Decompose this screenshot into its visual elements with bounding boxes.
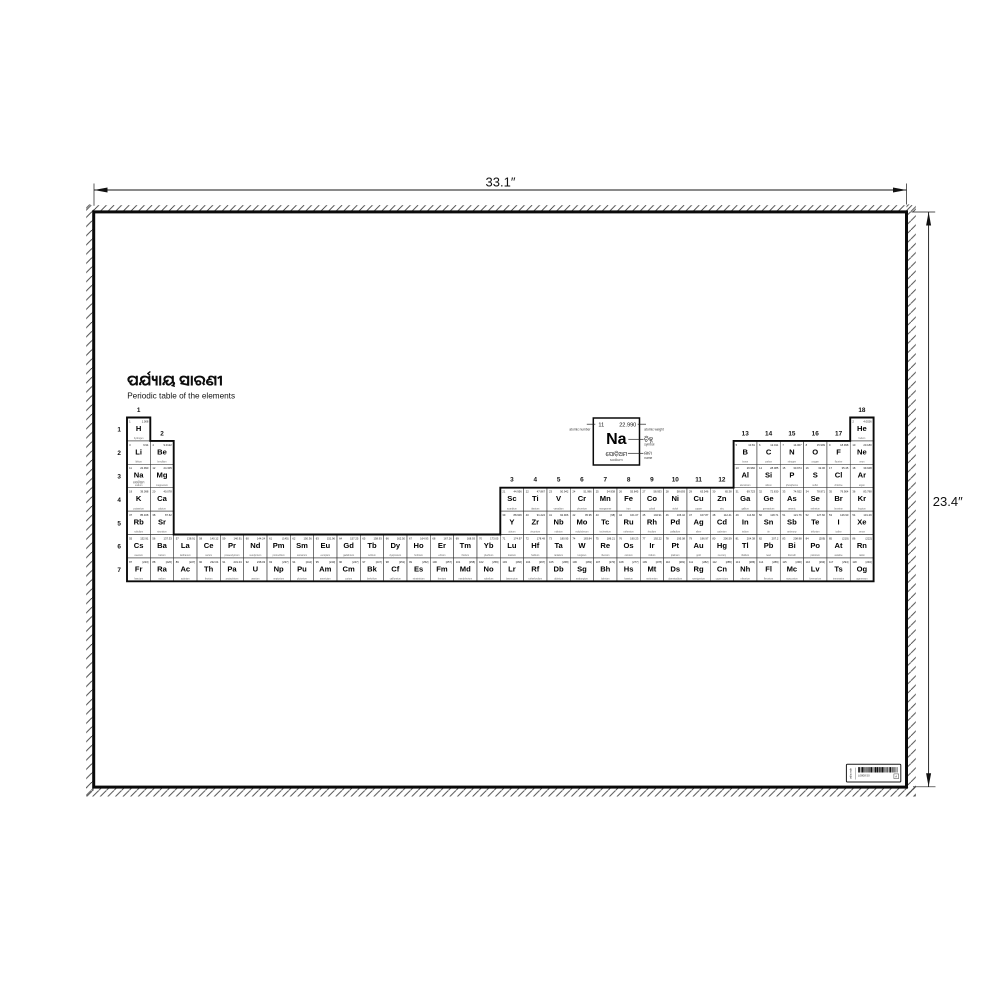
svg-text:xenon: xenon (859, 532, 866, 534)
svg-text:72: 72 (526, 536, 529, 540)
svg-text:beryllium: beryllium (157, 461, 166, 464)
svg-text:12: 12 (718, 476, 726, 483)
svg-text:La: La (181, 541, 191, 550)
svg-text:12.011: 12.011 (770, 443, 779, 447)
svg-text:Cm: Cm (343, 564, 355, 573)
svg-text:Pd: Pd (670, 518, 680, 527)
svg-text:flerovium: flerovium (764, 578, 773, 581)
svg-text:Ge: Ge (763, 494, 773, 503)
svg-text:[247]: [247] (352, 560, 358, 564)
svg-text:47.867: 47.867 (537, 490, 546, 494)
svg-text:167.26: 167.26 (443, 536, 452, 540)
svg-text:meitnerium: meitnerium (646, 578, 657, 581)
svg-text:Ds: Ds (670, 564, 680, 573)
svg-text:iodine: iodine (835, 532, 842, 534)
svg-text:117: 117 (829, 560, 834, 564)
svg-text:nihonium: nihonium (741, 579, 750, 581)
svg-text:hydrogen: hydrogen (134, 437, 144, 440)
svg-text:silver: silver (696, 531, 702, 534)
svg-text:europium: europium (321, 554, 331, 557)
svg-text:aluminium: aluminium (740, 485, 751, 487)
svg-text:33.1″: 33.1″ (486, 175, 516, 190)
svg-text:dubnium: dubnium (554, 579, 563, 581)
svg-text:200.59: 200.59 (723, 536, 732, 540)
svg-text:101.07: 101.07 (630, 513, 639, 517)
svg-text:28.085: 28.085 (770, 466, 779, 470)
svg-text:9: 9 (650, 476, 654, 483)
svg-text:vanadium: vanadium (554, 508, 564, 510)
svg-text:90: 90 (199, 560, 202, 564)
svg-text:15: 15 (782, 466, 785, 470)
svg-text:3: 3 (510, 476, 514, 483)
svg-text:Zn: Zn (717, 494, 727, 503)
svg-text:Es: Es (414, 564, 423, 573)
svg-text:74.922: 74.922 (793, 490, 802, 494)
svg-text:79: 79 (689, 536, 692, 540)
svg-text:14.007: 14.007 (793, 443, 802, 447)
svg-text:atomic weight: atomic weight (644, 428, 664, 432)
svg-text:Mg: Mg (157, 471, 168, 480)
svg-text:argon: argon (859, 484, 866, 487)
svg-text:titanium: titanium (531, 507, 539, 510)
svg-text:cobalt: cobalt (649, 507, 655, 510)
svg-text:162.50: 162.50 (397, 536, 406, 540)
svg-text:92.906: 92.906 (560, 513, 569, 517)
svg-text:Ar: Ar (858, 471, 866, 480)
svg-text:livermorium: livermorium (809, 578, 821, 581)
svg-text:118: 118 (852, 560, 857, 564)
svg-text:8: 8 (627, 476, 631, 483)
svg-text:Cf: Cf (391, 564, 399, 573)
svg-text:6: 6 (117, 544, 121, 551)
svg-text:Ho: Ho (414, 541, 424, 550)
svg-text:[226]: [226] (166, 560, 172, 564)
svg-text:Pb: Pb (764, 541, 774, 550)
svg-text:60: 60 (246, 536, 249, 540)
svg-text:Tl: Tl (742, 541, 749, 550)
svg-text:55: 55 (129, 536, 132, 540)
svg-text:67: 67 (409, 536, 412, 540)
svg-text:Mn: Mn (600, 494, 611, 503)
svg-text:17: 17 (835, 430, 843, 437)
svg-text:23: 23 (549, 490, 552, 494)
svg-text:chlorine: chlorine (835, 484, 844, 487)
svg-text:[268]: [268] (562, 560, 568, 564)
svg-text:Bh: Bh (600, 564, 610, 573)
svg-text:polonium: polonium (811, 555, 820, 557)
svg-text:36: 36 (852, 490, 855, 494)
svg-text:fluorine: fluorine (835, 461, 843, 464)
svg-text:50.942: 50.942 (560, 490, 569, 494)
svg-text:zirconium: zirconium (530, 531, 540, 534)
svg-text:70: 70 (479, 536, 482, 540)
svg-text:[223]: [223] (142, 560, 148, 564)
svg-text:[286]: [286] (749, 560, 755, 564)
svg-text:thulium: thulium (462, 554, 469, 557)
svg-text:No: No (484, 564, 494, 573)
svg-text:232.04: 232.04 (210, 560, 219, 564)
svg-text:S: S (813, 471, 818, 480)
svg-text:9.0122: 9.0122 (164, 443, 173, 447)
svg-text:150.36: 150.36 (304, 536, 313, 540)
svg-text:75: 75 (596, 536, 599, 540)
svg-text:207.2: 207.2 (772, 536, 779, 540)
svg-text:F: F (836, 447, 841, 456)
svg-text:3: 3 (117, 474, 121, 481)
svg-text:99: 99 (409, 560, 412, 564)
svg-text:arsenic: arsenic (788, 507, 796, 510)
svg-text:gadolinium: gadolinium (343, 555, 354, 557)
svg-text:Y: Y (509, 518, 514, 527)
svg-text:Gd: Gd (343, 541, 354, 550)
svg-text:4: 4 (117, 497, 121, 504)
svg-text:sodium: sodium (610, 457, 624, 462)
svg-text:Fm: Fm (436, 564, 448, 573)
svg-text:[294]: [294] (866, 560, 872, 564)
svg-text:sodium: sodium (135, 485, 142, 487)
svg-text:Ti: Ti (532, 494, 539, 503)
svg-text:Ag: Ag (694, 518, 704, 527)
svg-text:Ne: Ne (857, 447, 867, 456)
svg-text:Hs: Hs (624, 564, 634, 573)
svg-text:25: 25 (596, 490, 599, 494)
svg-text:110: 110 (666, 560, 671, 564)
svg-text:79.904: 79.904 (840, 490, 849, 494)
svg-text:caesium: caesium (134, 555, 143, 557)
svg-text:scandium: scandium (507, 508, 517, 510)
svg-text:Mt: Mt (647, 564, 656, 573)
svg-text:thorium: thorium (205, 578, 213, 581)
svg-text:Ni: Ni (671, 494, 679, 503)
svg-text:C: C (766, 447, 772, 456)
svg-text:H: H (136, 424, 141, 433)
svg-text:Rh: Rh (647, 518, 657, 527)
svg-text:tantalum: tantalum (554, 554, 563, 557)
svg-text:Zr: Zr (531, 518, 539, 527)
svg-text:rutherfordium: rutherfordium (528, 578, 542, 581)
svg-text:109: 109 (642, 560, 647, 564)
svg-text:22: 22 (526, 490, 529, 494)
svg-text:140.12: 140.12 (210, 536, 219, 540)
svg-text:odia edn: odia edn (848, 767, 852, 778)
svg-text:86: 86 (852, 536, 855, 540)
svg-text:darmstadtium: darmstadtium (668, 578, 682, 581)
svg-text:7: 7 (604, 476, 608, 483)
svg-text:98: 98 (386, 560, 389, 564)
svg-text:Rn: Rn (857, 541, 867, 550)
svg-text:Os: Os (624, 541, 634, 550)
svg-text:Sb: Sb (787, 518, 797, 527)
svg-text:164.93: 164.93 (420, 536, 429, 540)
svg-text:180.95: 180.95 (560, 536, 569, 540)
svg-text:2: 2 (160, 430, 164, 437)
svg-text:atomic number: atomic number (569, 428, 591, 432)
svg-text:94: 94 (292, 560, 295, 564)
svg-text:20: 20 (152, 490, 155, 494)
svg-text:231.04: 231.04 (234, 560, 243, 564)
svg-text:Po: Po (810, 541, 820, 550)
svg-text:113: 113 (736, 560, 741, 564)
svg-text:28: 28 (666, 490, 669, 494)
svg-text:phosphorus: phosphorus (786, 484, 799, 487)
svg-text:Kr: Kr (858, 494, 866, 503)
svg-text:astatine: astatine (835, 554, 844, 557)
svg-text:72.630: 72.630 (770, 490, 779, 494)
svg-text:Nb: Nb (554, 518, 564, 527)
svg-text:dysprosium: dysprosium (389, 554, 401, 557)
svg-text:21: 21 (502, 490, 505, 494)
svg-text:57: 57 (176, 536, 179, 540)
svg-text:cerium: cerium (205, 554, 212, 557)
svg-text:10: 10 (852, 443, 855, 447)
svg-text:plutonium: plutonium (297, 578, 307, 581)
svg-text:238.03: 238.03 (257, 560, 266, 564)
svg-text:Tm: Tm (460, 541, 472, 550)
svg-text:121.76: 121.76 (793, 513, 802, 517)
svg-text:yttrium: yttrium (508, 531, 515, 534)
svg-text:Na: Na (606, 431, 627, 448)
svg-text:Lv: Lv (811, 564, 821, 573)
svg-text:178.49: 178.49 (537, 536, 546, 540)
svg-text:Rf: Rf (531, 564, 539, 573)
svg-text:[278]: [278] (656, 560, 662, 564)
svg-text:20.180: 20.180 (863, 443, 872, 447)
svg-text:bohrium: bohrium (601, 578, 609, 581)
svg-text:lawrencium: lawrencium (506, 578, 518, 581)
svg-text:114: 114 (759, 560, 764, 564)
svg-text:krypton: krypton (858, 507, 866, 510)
svg-text:158.93: 158.93 (373, 536, 382, 540)
svg-text:64: 64 (339, 536, 342, 540)
svg-text:palladium: palladium (670, 532, 680, 534)
svg-text:Ba: Ba (157, 541, 167, 550)
svg-text:Cs: Cs (134, 541, 144, 550)
svg-text:115: 115 (782, 560, 787, 564)
svg-text:78: 78 (666, 536, 669, 540)
svg-text:Ta: Ta (554, 541, 563, 550)
svg-text:53: 53 (829, 513, 832, 517)
svg-text:80: 80 (712, 536, 715, 540)
svg-text:55.845: 55.845 (630, 490, 639, 494)
svg-text:73: 73 (549, 536, 552, 540)
svg-text:Cn: Cn (717, 564, 727, 573)
svg-text:12: 12 (152, 466, 155, 470)
svg-text:At: At (835, 541, 843, 550)
svg-text:[210]: [210] (842, 536, 848, 540)
svg-text:Ce: Ce (204, 541, 214, 550)
svg-text:erbium: erbium (438, 554, 445, 557)
svg-text:germanium: germanium (763, 507, 775, 510)
svg-text:34: 34 (806, 490, 809, 494)
svg-text:108: 108 (619, 560, 624, 564)
svg-text:[259]: [259] (492, 560, 498, 564)
svg-text:85: 85 (829, 536, 832, 540)
svg-text:holmium: holmium (414, 555, 423, 557)
svg-text:11: 11 (129, 466, 132, 470)
svg-text:tellurium: tellurium (811, 531, 820, 534)
svg-text:44: 44 (619, 513, 622, 517)
svg-text:195.08: 195.08 (677, 536, 686, 540)
svg-text:americium: americium (320, 578, 331, 581)
svg-text:[145]: [145] (282, 536, 288, 540)
svg-text:81: 81 (736, 536, 739, 540)
svg-text:osmium: osmium (625, 555, 633, 557)
svg-text:uranium: uranium (251, 578, 259, 581)
svg-text:84: 84 (806, 536, 809, 540)
svg-text:[222]: [222] (866, 536, 872, 540)
svg-text:2: 2 (117, 450, 121, 457)
svg-text:[251]: [251] (399, 560, 405, 564)
svg-text:32.06: 32.06 (818, 466, 825, 470)
svg-text:selenium: selenium (811, 508, 820, 510)
svg-text:rhodium: rhodium (648, 531, 656, 534)
svg-text:112: 112 (712, 560, 717, 564)
svg-text:131.29: 131.29 (863, 513, 872, 517)
svg-text:82: 82 (759, 536, 762, 540)
svg-text:berkelium: berkelium (367, 578, 377, 581)
svg-text:Og: Og (857, 564, 868, 573)
svg-text:61: 61 (269, 536, 272, 540)
svg-text:Pr: Pr (228, 541, 236, 550)
svg-text:Eu: Eu (320, 541, 330, 550)
svg-text:196.97: 196.97 (700, 536, 709, 540)
svg-text:173.05: 173.05 (490, 536, 499, 540)
svg-text:[247]: [247] (376, 560, 382, 564)
svg-text:lutetium: lutetium (508, 554, 516, 557)
svg-text:78.971: 78.971 (817, 490, 826, 494)
svg-text:Nh: Nh (740, 564, 750, 573)
svg-text:40: 40 (526, 513, 529, 517)
svg-text:barium: barium (158, 554, 165, 557)
svg-text:platinum: platinum (671, 554, 680, 557)
svg-text:Br: Br (834, 494, 842, 503)
svg-text:18.998: 18.998 (840, 443, 849, 447)
svg-text:68: 68 (432, 536, 435, 540)
svg-text:neptunium: neptunium (273, 578, 284, 581)
svg-text:[244]: [244] (306, 560, 312, 564)
svg-text:mercury: mercury (718, 554, 727, 557)
svg-text:Lr: Lr (508, 564, 516, 573)
svg-text:24.305: 24.305 (164, 466, 173, 470)
svg-text:13: 13 (736, 466, 739, 470)
svg-text:potassium: potassium (133, 507, 144, 510)
svg-text:[258]: [258] (469, 560, 475, 564)
svg-text:K: K (136, 494, 142, 503)
svg-text:hafnium: hafnium (531, 555, 539, 557)
svg-text:208.98: 208.98 (793, 536, 802, 540)
svg-text:54.938: 54.938 (607, 490, 616, 494)
svg-text:Pt: Pt (671, 541, 679, 550)
svg-text:francium: francium (134, 578, 143, 581)
svg-text:11: 11 (695, 476, 702, 483)
svg-text:[294]: [294] (842, 560, 848, 564)
svg-text:O: O (812, 447, 818, 456)
svg-text:terbium: terbium (368, 554, 376, 557)
svg-text:Ts: Ts (834, 564, 842, 573)
svg-text:copper: copper (695, 507, 702, 510)
svg-text:Ac: Ac (180, 564, 190, 573)
svg-text:thallium: thallium (741, 554, 749, 557)
svg-text:103: 103 (502, 560, 507, 564)
svg-text:Sg: Sg (577, 564, 587, 573)
svg-text:Rb: Rb (134, 518, 144, 527)
svg-text:magnesium: magnesium (156, 485, 168, 487)
svg-text:Yb: Yb (484, 541, 494, 550)
svg-text:140.91: 140.91 (234, 536, 243, 540)
svg-text:33: 33 (782, 490, 785, 494)
svg-text:5: 5 (117, 520, 121, 527)
svg-text:54: 54 (852, 513, 855, 517)
svg-text:102: 102 (479, 560, 484, 564)
svg-text:39.948: 39.948 (863, 466, 872, 470)
svg-text:[281]: [281] (679, 560, 685, 564)
svg-text:24: 24 (572, 490, 575, 494)
svg-text:74: 74 (572, 536, 575, 540)
svg-text:14: 14 (759, 466, 762, 470)
svg-text:rubidium: rubidium (134, 531, 143, 534)
svg-text:tungsten: tungsten (578, 554, 588, 557)
svg-text:[289]: [289] (772, 560, 778, 564)
svg-text:Mo: Mo (576, 518, 587, 527)
svg-text:88.906: 88.906 (513, 513, 522, 517)
svg-text:Na: Na (134, 471, 144, 480)
svg-text:47: 47 (689, 513, 692, 517)
svg-text:sulfur: sulfur (812, 484, 818, 487)
svg-text:22.990: 22.990 (140, 466, 149, 470)
svg-text:Li: Li (135, 447, 142, 456)
svg-text:[269]: [269] (586, 560, 592, 564)
svg-text:Er: Er (438, 541, 446, 550)
svg-text:nobelium: nobelium (484, 579, 493, 581)
svg-text:Sn: Sn (764, 518, 774, 527)
svg-text:87: 87 (129, 560, 132, 564)
svg-text:6: 6 (580, 476, 584, 483)
svg-text:7: 7 (117, 567, 121, 574)
svg-text:30.974: 30.974 (793, 466, 802, 470)
svg-text:Rg: Rg (694, 564, 704, 573)
svg-text:106: 106 (572, 560, 577, 564)
svg-text:[252]: [252] (422, 560, 428, 564)
svg-text:Se: Se (811, 494, 820, 503)
svg-text:112.41: 112.41 (724, 513, 733, 517)
svg-text:26: 26 (619, 490, 622, 494)
svg-text:50: 50 (759, 513, 762, 517)
svg-text:oganesson: oganesson (856, 579, 868, 581)
svg-text:51: 51 (782, 513, 785, 517)
svg-text:10.81: 10.81 (748, 443, 755, 447)
svg-text:39.098: 39.098 (140, 490, 149, 494)
svg-text:29: 29 (689, 490, 692, 494)
svg-text:Fe: Fe (624, 494, 633, 503)
svg-text:52: 52 (806, 513, 809, 517)
svg-text:ruthenium: ruthenium (623, 531, 633, 534)
svg-text:116: 116 (806, 560, 811, 564)
svg-text:14: 14 (765, 430, 773, 437)
svg-text:1: 1 (137, 407, 141, 414)
svg-text:89: 89 (176, 560, 179, 564)
svg-text:Mc: Mc (787, 564, 798, 573)
svg-text:58: 58 (199, 536, 202, 540)
svg-text:111: 111 (689, 560, 694, 564)
svg-text:157.25: 157.25 (350, 536, 359, 540)
svg-text:Dy: Dy (390, 541, 400, 550)
svg-text:95.95: 95.95 (585, 513, 592, 517)
svg-text:[209]: [209] (819, 536, 825, 540)
svg-text:W: W (578, 541, 586, 550)
svg-text:mendelevium: mendelevium (458, 579, 472, 581)
svg-text:144.24: 144.24 (257, 536, 266, 540)
svg-text:186.21: 186.21 (607, 536, 616, 540)
